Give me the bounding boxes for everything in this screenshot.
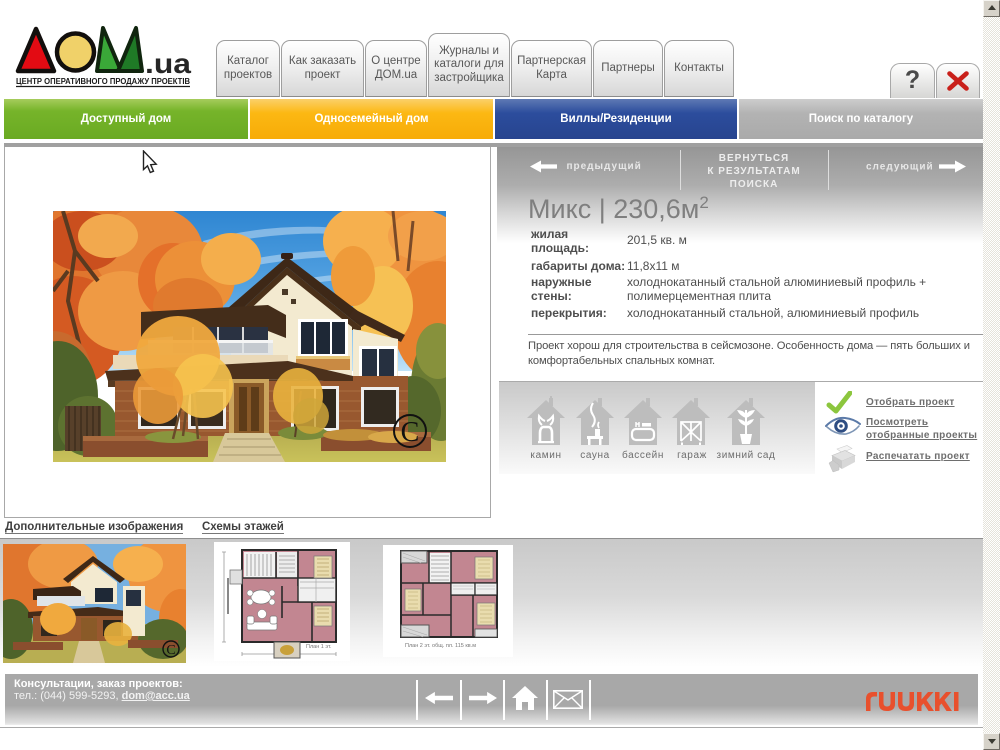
svg-text:ЦЕНТР ОПЕРАТИВНОГО ПРОДАЖУ ПРО: ЦЕНТР ОПЕРАТИВНОГО ПРОДАЖУ ПРОЕКТІВ (16, 76, 190, 86)
svg-text:План 1 эт.: План 1 эт. (306, 644, 332, 650)
svg-text:.ua: .ua (145, 48, 191, 79)
svg-text:C: C (401, 417, 420, 448)
svg-text:План 2 эт. общ. пл. 115 кв.м: План 2 эт. общ. пл. 115 кв.м (405, 643, 476, 649)
svg-text:C: C (166, 643, 175, 658)
